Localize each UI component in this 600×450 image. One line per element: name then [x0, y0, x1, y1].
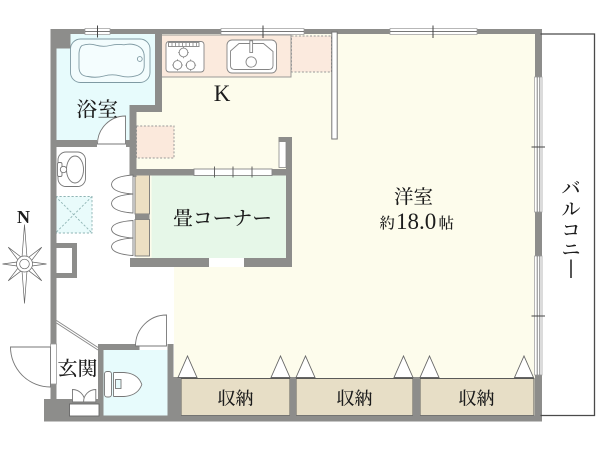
svg-text:K: K — [214, 81, 231, 106]
svg-text:N: N — [17, 207, 30, 227]
svg-text:18.0: 18.0 — [396, 209, 436, 234]
